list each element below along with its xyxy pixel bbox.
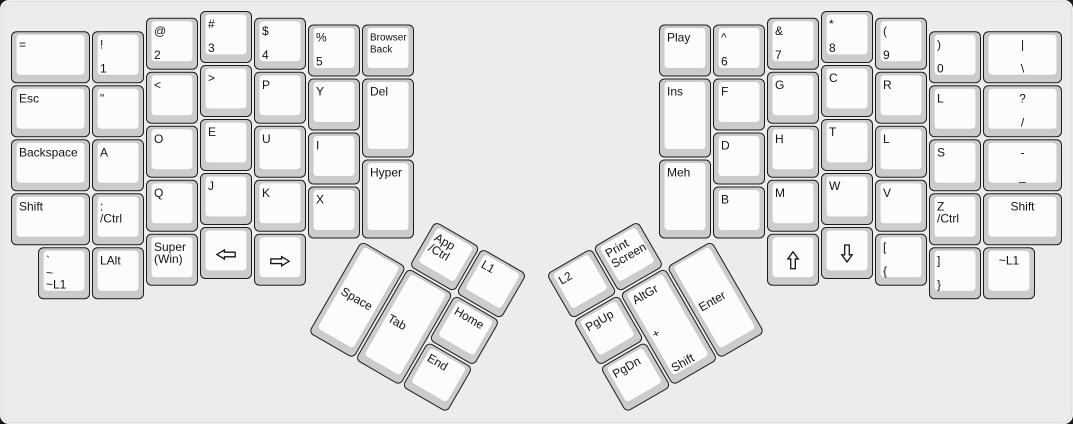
svg-text:>: > bbox=[208, 71, 215, 85]
svg-text:(: ( bbox=[883, 24, 887, 38]
svg-text:?: ? bbox=[1019, 91, 1026, 105]
svg-text:/Ctrl: /Ctrl bbox=[100, 211, 122, 225]
svg-text:Hyper: Hyper bbox=[370, 166, 402, 180]
svg-text:7: 7 bbox=[775, 48, 782, 62]
svg-text:0: 0 bbox=[937, 61, 944, 75]
svg-text:T: T bbox=[829, 125, 837, 139]
svg-text:}: } bbox=[937, 277, 941, 291]
svg-text:Meh: Meh bbox=[667, 166, 690, 180]
svg-text:L: L bbox=[937, 91, 944, 105]
svg-text:6: 6 bbox=[721, 55, 728, 69]
svg-text:Back: Back bbox=[370, 45, 393, 56]
svg-text:I: I bbox=[316, 139, 319, 153]
svg-text:1: 1 bbox=[100, 61, 107, 75]
svg-text:~L1: ~L1 bbox=[46, 277, 67, 291]
svg-text:Ins: Ins bbox=[667, 85, 683, 99]
svg-text:2: 2 bbox=[154, 48, 161, 62]
svg-text:Shift: Shift bbox=[19, 199, 44, 213]
svg-text:": " bbox=[100, 91, 104, 105]
svg-text:~L1: ~L1 bbox=[999, 253, 1020, 267]
svg-text:{: { bbox=[883, 264, 887, 278]
svg-text:X: X bbox=[316, 193, 324, 207]
svg-text:!: ! bbox=[100, 37, 103, 51]
svg-text:&: & bbox=[775, 24, 783, 38]
svg-text:$: $ bbox=[262, 24, 269, 38]
svg-text:<: < bbox=[154, 78, 161, 92]
svg-text:]: ] bbox=[937, 253, 940, 267]
svg-text:H: H bbox=[775, 132, 784, 146]
svg-text:@: @ bbox=[154, 24, 166, 38]
svg-text:K: K bbox=[262, 186, 270, 200]
svg-text:#: # bbox=[208, 17, 215, 31]
svg-text:%: % bbox=[316, 31, 327, 45]
svg-text:LAlt: LAlt bbox=[100, 253, 121, 267]
svg-text:): ) bbox=[937, 37, 941, 51]
svg-text:P: P bbox=[262, 78, 270, 92]
svg-text:Backspace: Backspace bbox=[19, 145, 78, 159]
svg-text:(Win): (Win) bbox=[154, 252, 183, 266]
svg-text:B: B bbox=[721, 193, 729, 207]
svg-text:8: 8 bbox=[829, 41, 836, 55]
svg-text:J: J bbox=[208, 179, 214, 193]
svg-text:V: V bbox=[883, 186, 891, 200]
svg-text:5: 5 bbox=[316, 55, 323, 69]
svg-text:Play: Play bbox=[667, 31, 690, 45]
svg-text:Shift: Shift bbox=[1010, 199, 1035, 213]
svg-text:Y: Y bbox=[316, 85, 324, 99]
svg-text:S: S bbox=[937, 145, 945, 159]
svg-text:A: A bbox=[100, 145, 108, 159]
svg-text:-: - bbox=[1021, 145, 1025, 159]
svg-text:U: U bbox=[262, 132, 271, 146]
svg-text:C: C bbox=[829, 71, 838, 85]
svg-text:M: M bbox=[775, 186, 785, 200]
svg-text:=: = bbox=[19, 37, 26, 51]
svg-text:Esc: Esc bbox=[19, 91, 39, 105]
svg-text:|: | bbox=[1021, 37, 1024, 51]
svg-text:E: E bbox=[208, 125, 216, 139]
svg-text:W: W bbox=[829, 179, 841, 193]
svg-text:_: _ bbox=[1018, 169, 1026, 183]
svg-text:^: ^ bbox=[721, 31, 727, 45]
svg-text:G: G bbox=[775, 78, 784, 92]
svg-text:F: F bbox=[721, 85, 728, 99]
svg-text:Browser: Browser bbox=[370, 33, 407, 44]
svg-text:Q: Q bbox=[154, 186, 163, 200]
svg-text:*: * bbox=[829, 17, 834, 31]
svg-text:O: O bbox=[154, 132, 163, 146]
svg-text:Del: Del bbox=[370, 85, 388, 99]
svg-text:R: R bbox=[883, 78, 892, 92]
svg-text:/Ctrl: /Ctrl bbox=[937, 211, 959, 225]
svg-text:D: D bbox=[721, 139, 730, 153]
svg-text:3: 3 bbox=[208, 41, 215, 55]
svg-text:9: 9 bbox=[883, 48, 890, 62]
svg-text:L: L bbox=[883, 132, 890, 146]
svg-text:4: 4 bbox=[262, 48, 269, 62]
